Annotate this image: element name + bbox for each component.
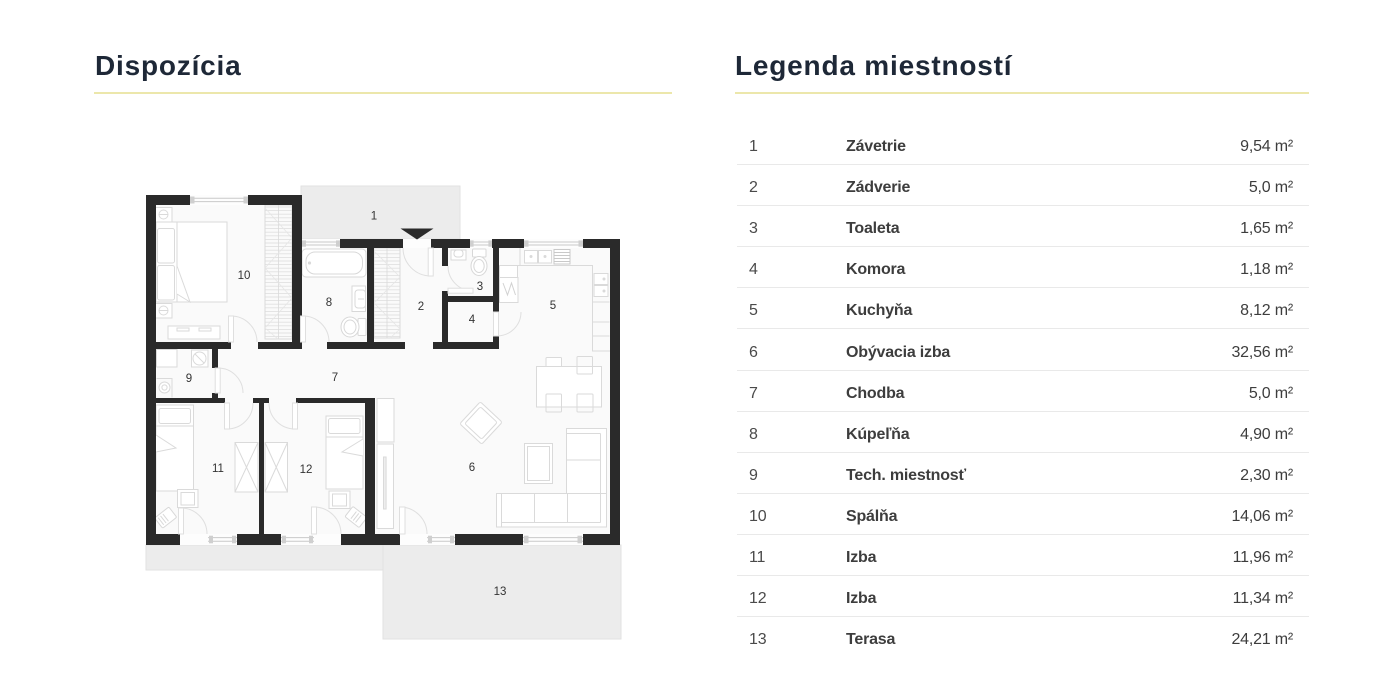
svg-text:5: 5 <box>550 300 556 312</box>
svg-text:12: 12 <box>300 464 313 476</box>
svg-text:8: 8 <box>326 297 332 309</box>
svg-text:9: 9 <box>186 373 192 385</box>
svg-text:7: 7 <box>332 372 338 384</box>
svg-text:10: 10 <box>238 270 251 282</box>
svg-text:2: 2 <box>418 301 424 313</box>
svg-text:11: 11 <box>212 463 224 475</box>
svg-text:1: 1 <box>371 211 377 223</box>
svg-text:4: 4 <box>469 314 476 326</box>
svg-text:3: 3 <box>477 281 483 293</box>
svg-text:13: 13 <box>494 586 507 598</box>
svg-text:6: 6 <box>469 462 475 474</box>
